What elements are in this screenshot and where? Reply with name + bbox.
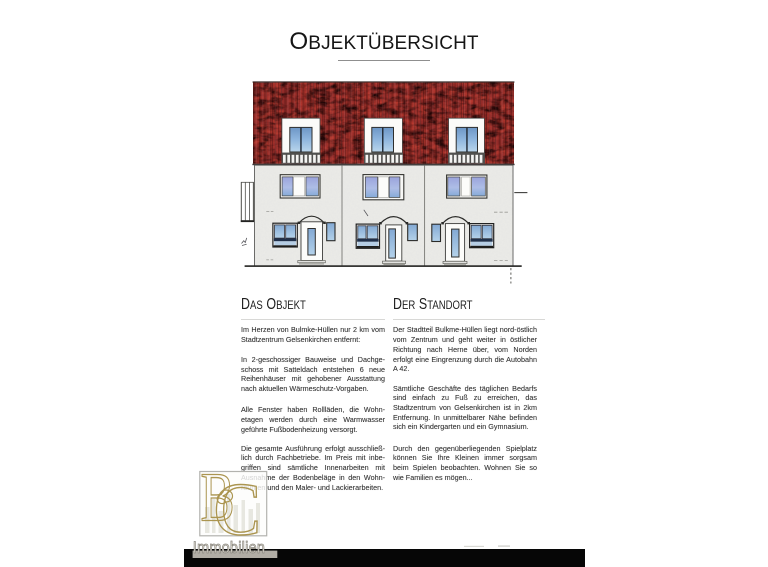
svg-text:Immobilien: Immobilien [193,539,265,557]
